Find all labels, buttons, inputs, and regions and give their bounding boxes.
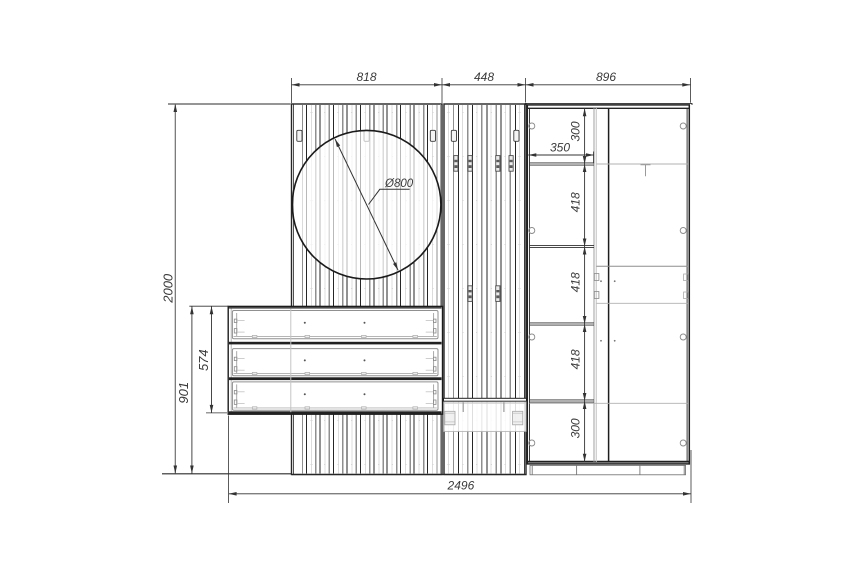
- svg-text:350: 350: [550, 141, 570, 155]
- svg-text:418: 418: [569, 349, 583, 369]
- svg-text:448: 448: [474, 70, 494, 84]
- svg-text:901: 901: [176, 382, 191, 404]
- svg-text:574: 574: [196, 349, 211, 371]
- svg-text:300: 300: [569, 121, 583, 141]
- svg-text:418: 418: [569, 272, 583, 292]
- svg-text:300: 300: [569, 418, 583, 438]
- svg-text:2000: 2000: [160, 273, 175, 304]
- svg-text:418: 418: [569, 192, 583, 212]
- svg-text:818: 818: [356, 70, 376, 84]
- svg-text:Ø800: Ø800: [384, 178, 414, 190]
- svg-text:896: 896: [596, 70, 616, 84]
- svg-text:2496: 2496: [447, 479, 475, 493]
